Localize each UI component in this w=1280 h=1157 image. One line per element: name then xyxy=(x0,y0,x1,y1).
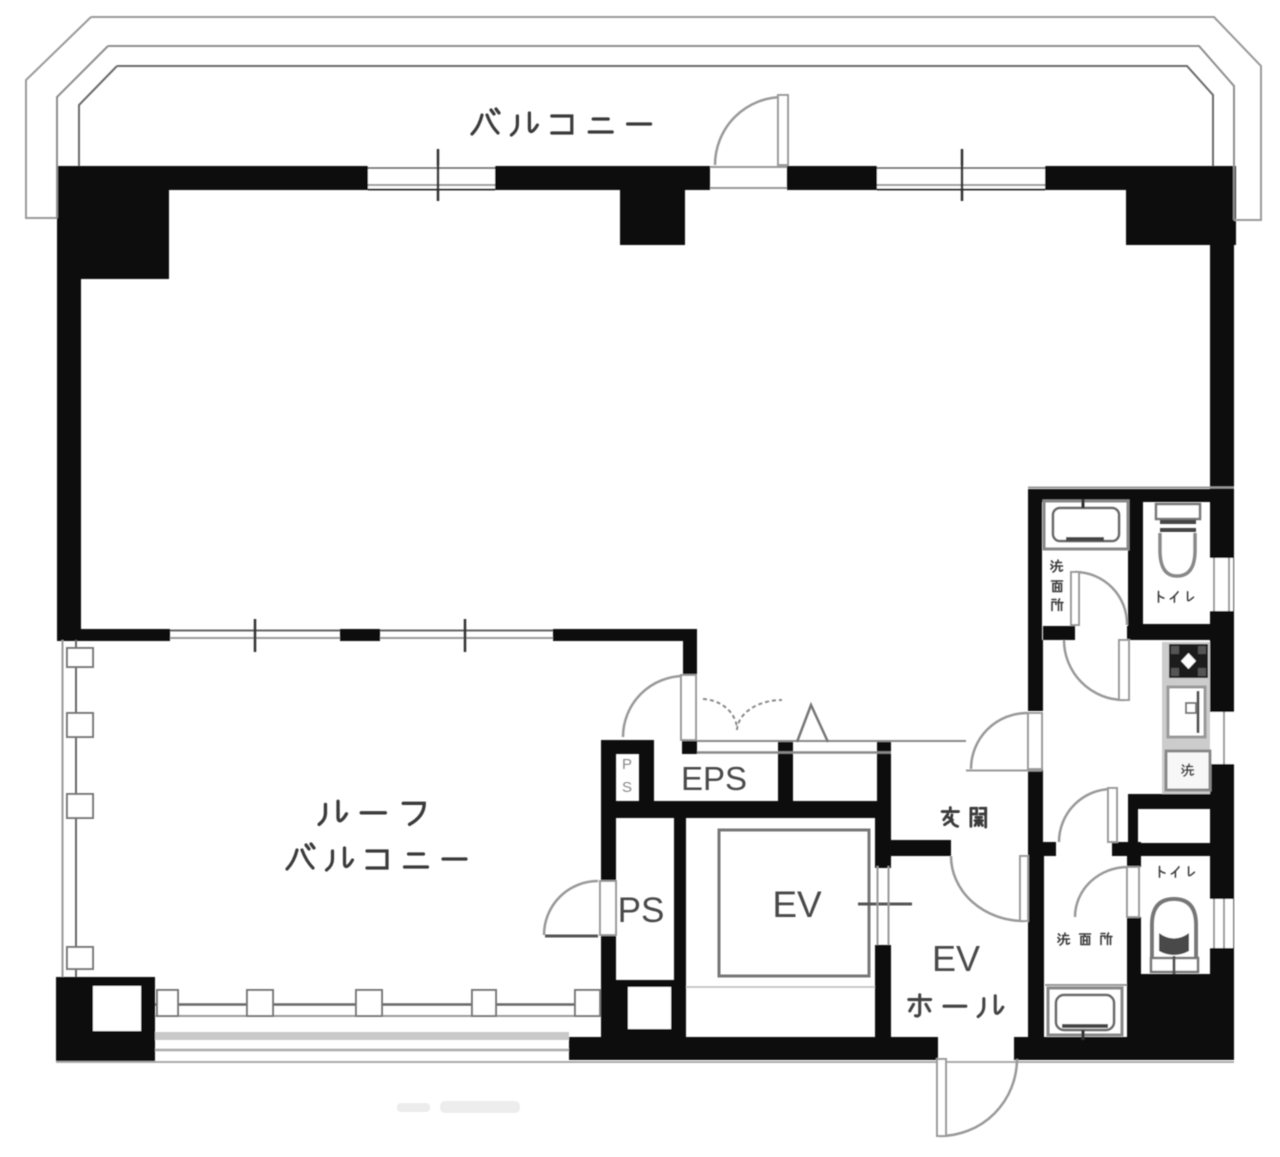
svg-text:EV: EV xyxy=(932,938,980,979)
svg-text:EPS: EPS xyxy=(681,760,747,797)
svg-text:S: S xyxy=(622,779,632,796)
svg-text:P: P xyxy=(622,756,632,773)
svg-text:PS: PS xyxy=(618,891,665,930)
svg-text:EV: EV xyxy=(772,884,822,925)
